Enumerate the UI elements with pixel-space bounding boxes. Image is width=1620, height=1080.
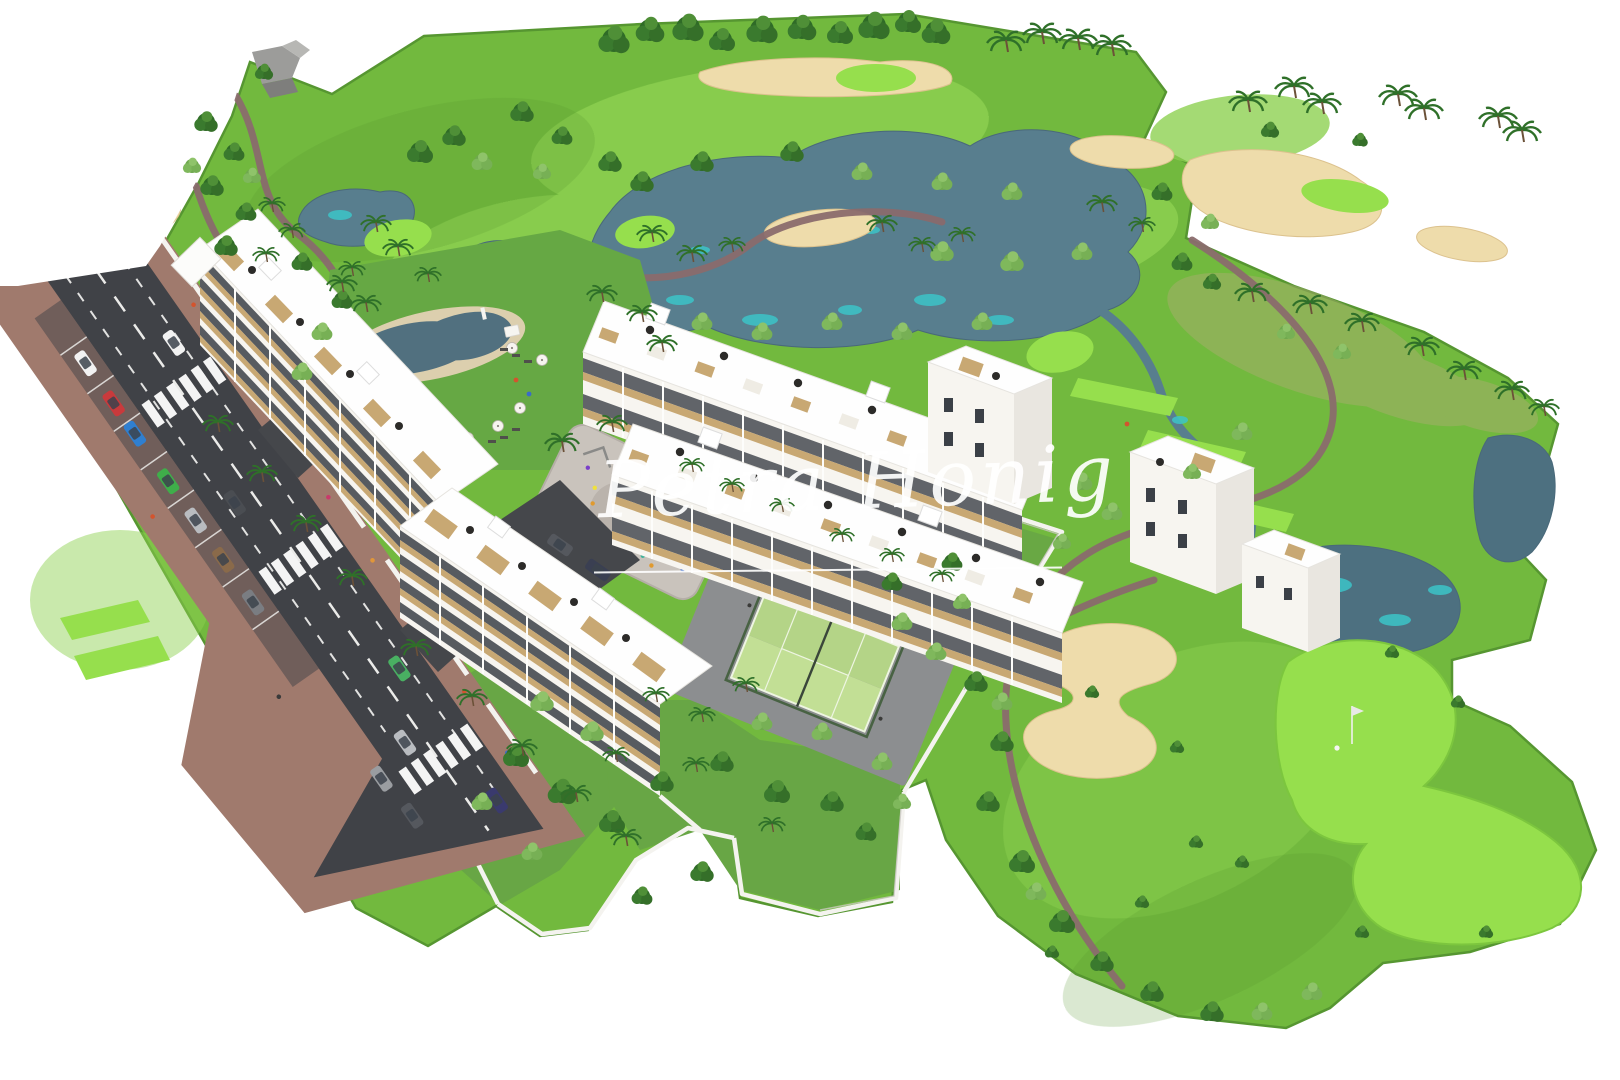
golfer: [1334, 745, 1339, 750]
aerial-render-golf-resort: Petra Honig: [0, 0, 1620, 1080]
scene-svg: [0, 0, 1620, 1080]
